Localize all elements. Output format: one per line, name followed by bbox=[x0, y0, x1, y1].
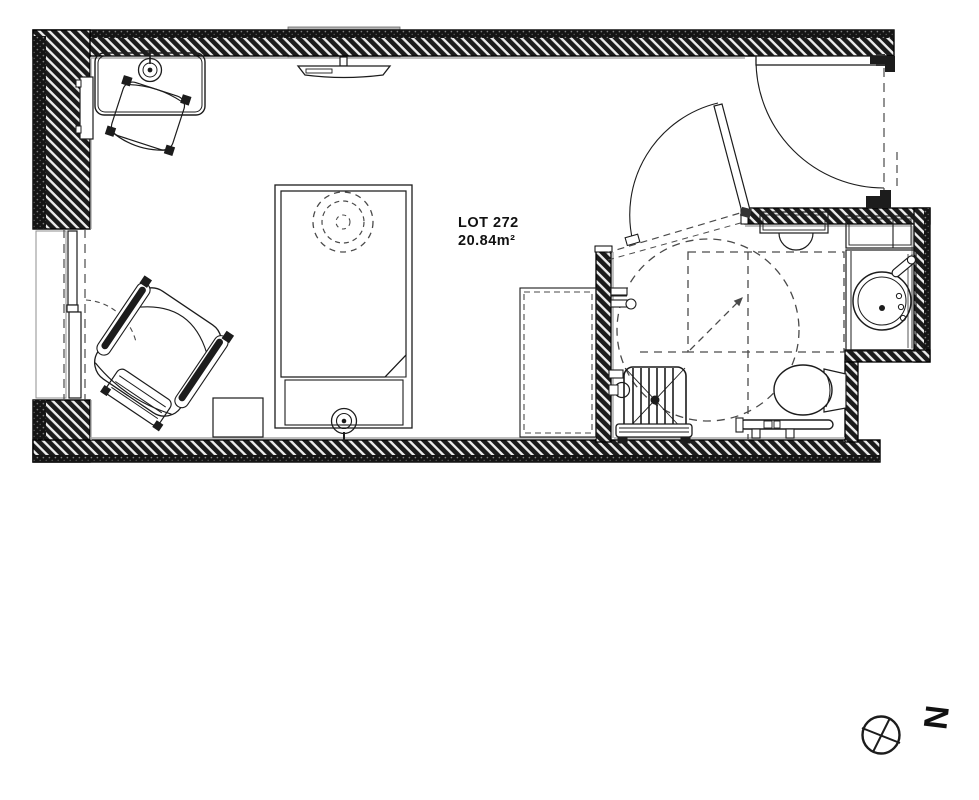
north-compass: N bbox=[862, 703, 956, 753]
entrance-door-leaf bbox=[756, 56, 884, 65]
round-washbasin bbox=[853, 254, 917, 330]
wall-bottom-band bbox=[33, 455, 880, 462]
ceiling-light-dashed-icon bbox=[313, 192, 373, 252]
wall-bathroom-right-band bbox=[924, 208, 930, 362]
toilet bbox=[774, 365, 846, 415]
entrance-door-arc bbox=[756, 60, 884, 188]
floorplan-svg: LOT 272 20.84m² N bbox=[0, 0, 979, 800]
nightstand bbox=[213, 398, 263, 437]
floorplan-page: LOT 272 20.84m² N bbox=[0, 0, 979, 800]
bathroom-door-stop bbox=[625, 234, 640, 245]
lot-annotation: LOT 272 20.84m² bbox=[458, 215, 519, 249]
basin-faucet-icon bbox=[890, 254, 917, 278]
bathroom-door-closed-dashed bbox=[606, 213, 740, 253]
wardrobe-dashed bbox=[520, 288, 596, 437]
wall-top-band bbox=[33, 30, 894, 38]
wall-divider-endcap bbox=[595, 246, 612, 252]
shower-seat bbox=[624, 367, 686, 433]
ottoman bbox=[100, 365, 177, 431]
bathroom-door-leaf bbox=[714, 104, 750, 212]
wall-divider bbox=[596, 250, 611, 442]
bed-foot-section bbox=[285, 380, 403, 425]
bathroom-door-arc bbox=[630, 103, 718, 242]
grab-bar bbox=[736, 418, 833, 438]
armchair bbox=[84, 275, 234, 426]
bed-mattress bbox=[281, 191, 406, 377]
toilet-bowl bbox=[774, 365, 832, 415]
basin-drain bbox=[879, 305, 885, 311]
entrance-door bbox=[756, 54, 897, 208]
desk-chair bbox=[105, 76, 191, 158]
bed-blanket-fold bbox=[385, 355, 406, 377]
lot-number-label: LOT 272 bbox=[458, 215, 519, 231]
accessibility-turning-circle bbox=[617, 239, 799, 421]
single-bed bbox=[275, 185, 412, 428]
wall-step-horizontal bbox=[845, 350, 930, 362]
compass-cross-2 bbox=[873, 718, 890, 752]
door-frame-stop-bottom bbox=[866, 190, 891, 208]
door-frame-stop-top bbox=[870, 56, 895, 72]
wall-left-upper-band bbox=[33, 36, 46, 229]
wall-tv bbox=[298, 57, 390, 78]
wall-step-vertical bbox=[845, 362, 858, 442]
lot-area-label: 20.84m² bbox=[458, 233, 516, 249]
compass-north-letter: N bbox=[917, 703, 957, 731]
bathroom-door bbox=[606, 103, 752, 260]
